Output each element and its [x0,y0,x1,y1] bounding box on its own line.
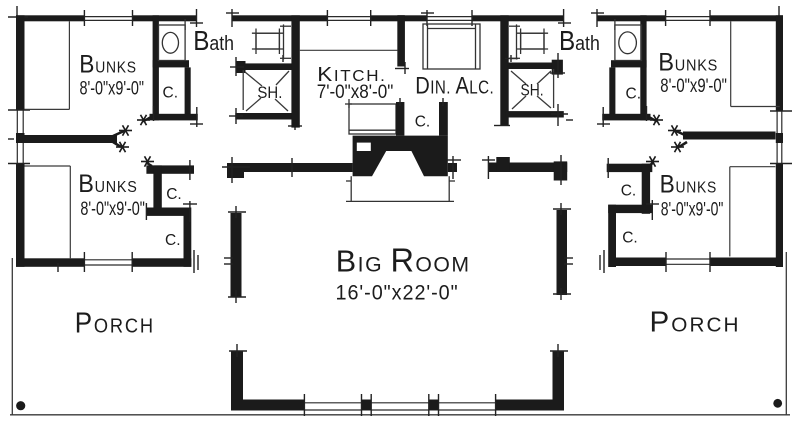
svg-text:C.: C. [163,84,179,101]
svg-text:8'-0"x9'-0": 8'-0"x9'-0" [80,78,145,99]
svg-text:8'-0"x9'-0": 8'-0"x9'-0" [661,198,724,220]
svg-text:C.: C. [622,230,638,247]
svg-text:C.: C. [165,232,181,249]
svg-text:SH.: SH. [257,84,282,102]
svg-text:C.: C. [621,183,637,200]
svg-text:C.: C. [166,186,182,203]
svg-text:8'-0"x9'-0": 8'-0"x9'-0" [80,198,145,219]
svg-text:C.: C. [415,114,431,131]
svg-text:C.: C. [626,86,642,103]
svg-text:16'-0"x22'-0": 16'-0"x22'-0" [336,282,459,305]
svg-text:8'-0"x9'-0": 8'-0"x9'-0" [660,75,727,96]
svg-text:7'-0"x8'-0": 7'-0"x8'-0" [317,81,394,102]
svg-text:SH.: SH. [521,81,544,99]
